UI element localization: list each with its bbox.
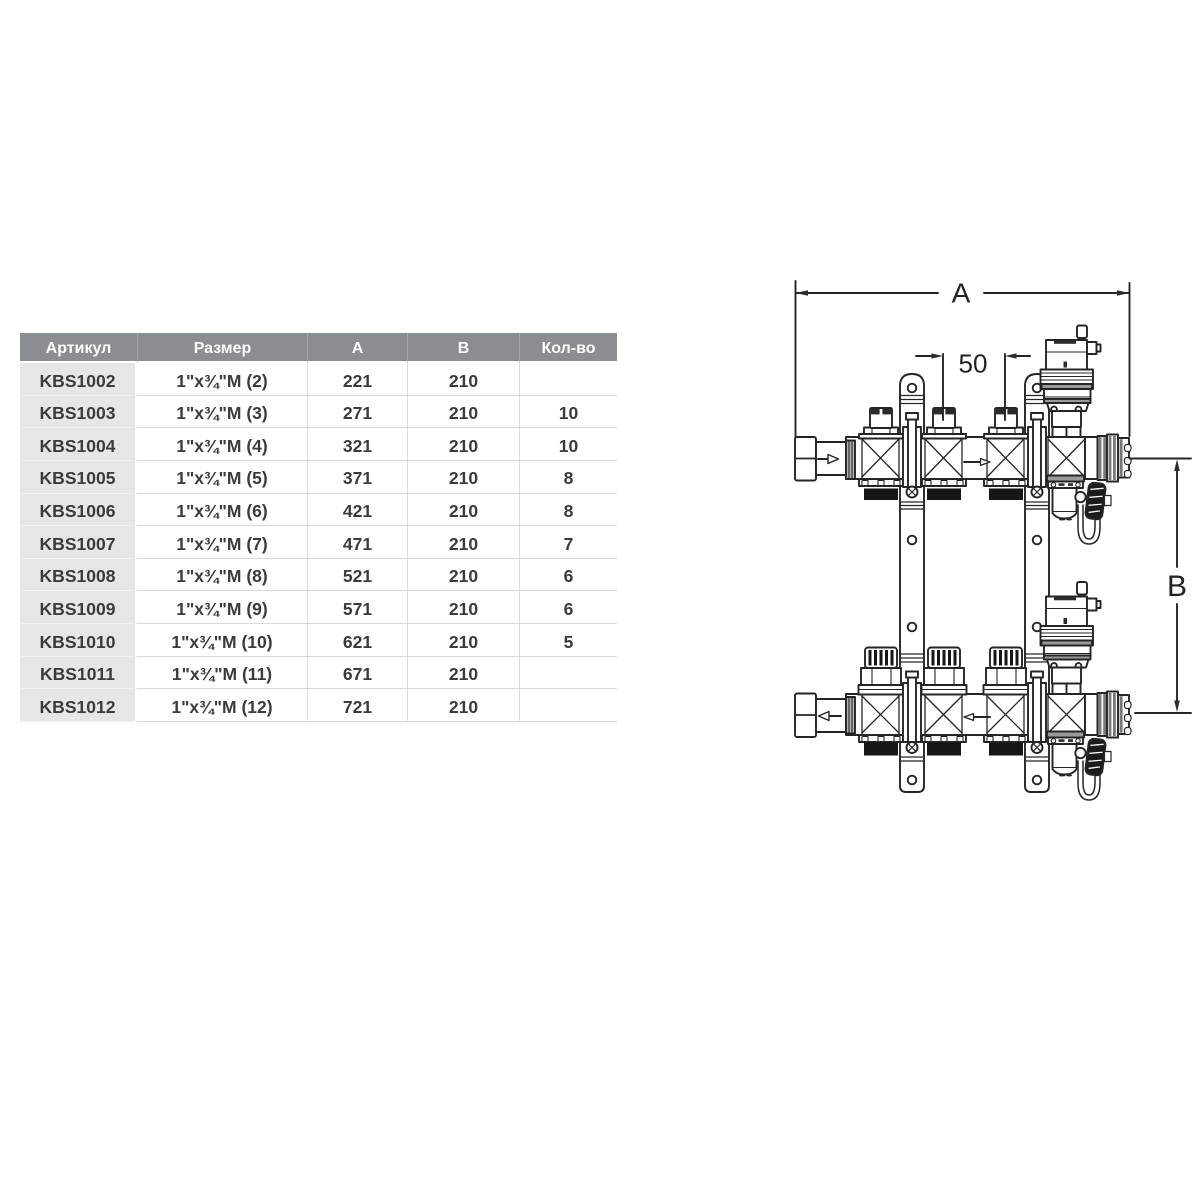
svg-text:50: 50	[959, 349, 988, 379]
svg-text:A: A	[952, 278, 971, 309]
svg-text:B: B	[1167, 570, 1187, 603]
